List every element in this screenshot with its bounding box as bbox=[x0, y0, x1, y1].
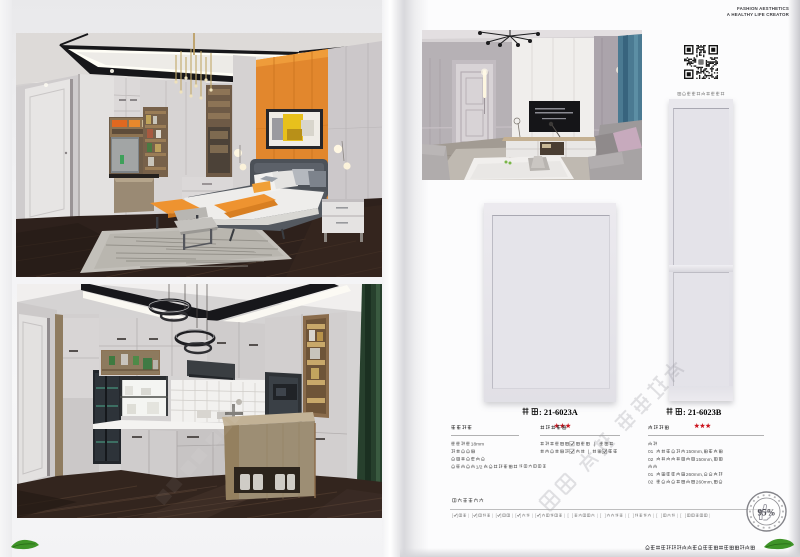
svg-text:]: ] bbox=[476, 513, 477, 518]
svg-text:[: [ bbox=[628, 513, 630, 518]
svg-text:]: ] bbox=[520, 513, 521, 518]
svg-text:260mm,: 260mm, bbox=[686, 472, 703, 478]
svg-text:02: 02 bbox=[648, 457, 654, 463]
svg-text:[: [ bbox=[600, 513, 602, 518]
svg-text:]: ] bbox=[633, 513, 634, 518]
svg-text:[: [ bbox=[568, 513, 570, 518]
svg-text:01: 01 bbox=[648, 449, 654, 455]
svg-text:[: [ bbox=[680, 513, 682, 518]
svg-text:]: ] bbox=[605, 513, 606, 518]
svg-text:|: | bbox=[653, 513, 654, 518]
svg-text:02: 02 bbox=[648, 480, 654, 486]
svg-text:1/2: 1/2 bbox=[476, 464, 483, 470]
svg-text:|: | bbox=[709, 513, 710, 518]
svg-text:95%: 95% bbox=[758, 508, 776, 518]
svg-text:|: | bbox=[597, 513, 598, 518]
svg-text:|: | bbox=[625, 513, 626, 518]
svg-text:[: [ bbox=[656, 513, 658, 518]
svg-text:01: 01 bbox=[648, 472, 654, 478]
svg-text:|: | bbox=[588, 449, 589, 455]
svg-text:150mm,: 150mm, bbox=[696, 457, 713, 463]
svg-text:150mm,: 150mm, bbox=[686, 449, 703, 455]
svg-text:|: | bbox=[492, 513, 493, 518]
svg-text:|: | bbox=[564, 513, 565, 518]
svg-text:|: | bbox=[594, 442, 595, 448]
svg-text:18mm: 18mm bbox=[471, 442, 484, 448]
svg-text:]: ] bbox=[572, 513, 573, 518]
svg-text:|: | bbox=[468, 513, 469, 518]
svg-text:]: ] bbox=[685, 513, 686, 518]
svg-text:|: | bbox=[677, 513, 678, 518]
svg-text:]: ] bbox=[661, 513, 662, 518]
svg-text:|: | bbox=[532, 513, 533, 518]
svg-text:]: ] bbox=[500, 513, 501, 518]
svg-text:260mm,: 260mm, bbox=[696, 480, 713, 486]
svg-text:]: ] bbox=[457, 513, 458, 518]
svg-text:|: | bbox=[512, 513, 513, 518]
svg-text:]: ] bbox=[540, 513, 541, 518]
